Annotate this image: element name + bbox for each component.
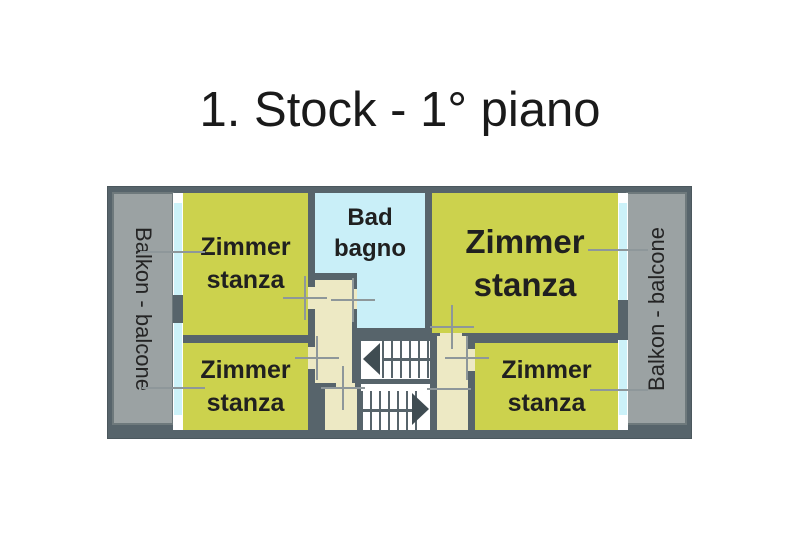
window	[174, 203, 182, 295]
room-label: Zimmer stanza	[501, 354, 591, 420]
balcony-left: Balkon - balcone	[112, 192, 174, 425]
door-mark	[445, 336, 489, 380]
wall-segment	[173, 295, 183, 323]
bathroom-label: Bad bagno	[334, 202, 406, 264]
door-mark	[331, 278, 375, 322]
balcony-door-line	[140, 251, 205, 253]
stair-rail-line	[382, 358, 430, 361]
stair-landing-divider	[361, 379, 430, 384]
window	[619, 203, 627, 300]
room-label: Zimmer stanza	[465, 220, 584, 306]
balcony-door-line	[142, 387, 205, 389]
room-label: Zimmer stanza	[200, 354, 290, 420]
staircase	[361, 341, 430, 430]
window	[174, 323, 182, 415]
balcony-right-label: Balkon - balcone	[644, 227, 670, 391]
door-mark	[283, 276, 327, 320]
door-line	[427, 388, 471, 390]
room-label: Zimmer stanza	[200, 231, 290, 297]
wall-segment	[618, 300, 628, 340]
balcony-door-line	[590, 389, 648, 391]
floor-plan: Balkon - balcone Balkon - balcone Zimmer…	[108, 187, 691, 438]
stair-arrow-left-icon	[363, 343, 380, 375]
page-title: 1. Stock - 1° piano	[0, 82, 800, 138]
stair-arrow-right-icon	[412, 393, 429, 425]
bathroom: Bad bagno	[315, 193, 425, 273]
balcony-door-line	[588, 249, 648, 251]
window	[619, 340, 627, 415]
room-bottom-right: Zimmer stanza	[475, 343, 618, 430]
door-mark	[321, 366, 365, 410]
